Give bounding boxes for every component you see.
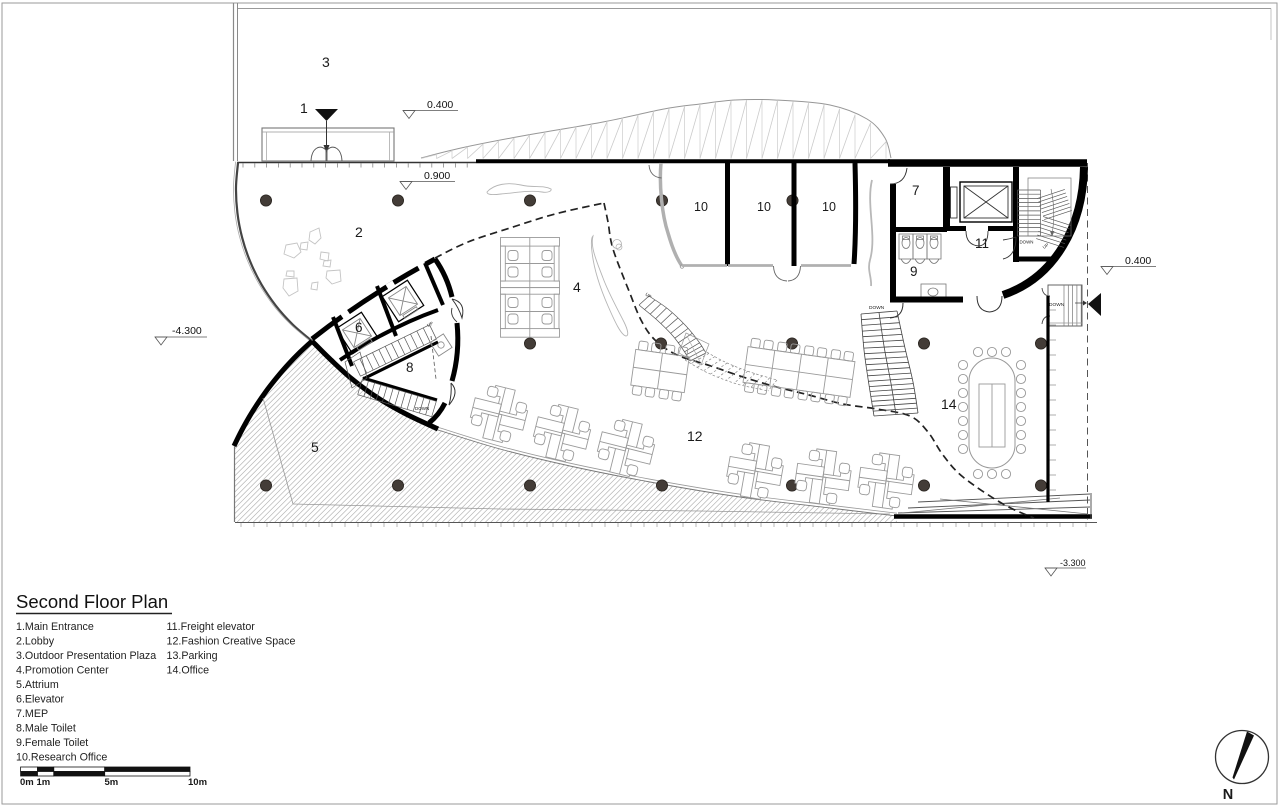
svg-text:1m: 1m xyxy=(37,777,51,788)
svg-text:9: 9 xyxy=(910,264,918,279)
svg-text:10: 10 xyxy=(822,200,836,214)
svg-text:7: 7 xyxy=(912,183,920,198)
svg-text:0.400: 0.400 xyxy=(1125,255,1151,267)
svg-text:10.Research Office: 10.Research Office xyxy=(16,752,107,764)
svg-text:5.Attrium: 5.Attrium xyxy=(16,679,59,691)
svg-text:DOWN: DOWN xyxy=(869,305,885,311)
svg-text:4: 4 xyxy=(573,279,581,295)
svg-text:8: 8 xyxy=(406,360,414,375)
svg-text:14: 14 xyxy=(941,396,957,412)
svg-text:12.Fashion Creative Space: 12.Fashion Creative Space xyxy=(167,636,296,648)
svg-text:14.Office: 14.Office xyxy=(167,665,210,677)
svg-text:3: 3 xyxy=(322,54,330,70)
svg-text:0m: 0m xyxy=(20,777,34,788)
svg-text:2: 2 xyxy=(355,224,363,240)
svg-text:6: 6 xyxy=(355,320,363,335)
svg-text:Second Floor Plan: Second Floor Plan xyxy=(16,591,168,612)
svg-text:9.Female Toilet: 9.Female Toilet xyxy=(16,737,88,749)
svg-text:8.Male Toilet: 8.Male Toilet xyxy=(16,723,76,735)
svg-text:UP: UP xyxy=(426,321,434,328)
svg-text:1: 1 xyxy=(300,100,308,116)
svg-text:6.Elevator: 6.Elevator xyxy=(16,694,65,706)
svg-text:UP: UP xyxy=(1042,242,1050,250)
svg-text:4.Promotion Center: 4.Promotion Center xyxy=(16,665,109,677)
svg-text:UP: UP xyxy=(644,292,652,300)
svg-text:11.Freight elevator: 11.Freight elevator xyxy=(167,621,256,633)
svg-text:12: 12 xyxy=(687,428,703,444)
svg-text:5m: 5m xyxy=(105,777,119,788)
svg-text:10m: 10m xyxy=(188,777,207,788)
svg-text:DOWN: DOWN xyxy=(1049,302,1065,308)
svg-text:0.900: 0.900 xyxy=(424,170,450,182)
svg-text:-4.300: -4.300 xyxy=(172,325,202,337)
svg-text:7.MEP: 7.MEP xyxy=(16,708,48,720)
svg-text:1.Main Entrance: 1.Main Entrance xyxy=(16,621,94,633)
svg-text:13.Parking: 13.Parking xyxy=(167,650,218,662)
svg-text:DOWN: DOWN xyxy=(415,406,429,411)
svg-text:N: N xyxy=(1223,787,1233,803)
svg-text:5: 5 xyxy=(311,439,319,455)
svg-text:DOWN: DOWN xyxy=(1020,240,1034,245)
svg-text:2.Lobby: 2.Lobby xyxy=(16,636,55,648)
svg-text:-3.300: -3.300 xyxy=(1060,558,1086,568)
svg-text:3.Outdoor Presentation Plaza: 3.Outdoor Presentation Plaza xyxy=(16,650,156,662)
svg-text:10: 10 xyxy=(694,200,708,214)
svg-text:0.400: 0.400 xyxy=(427,99,453,111)
svg-text:10: 10 xyxy=(757,200,771,214)
